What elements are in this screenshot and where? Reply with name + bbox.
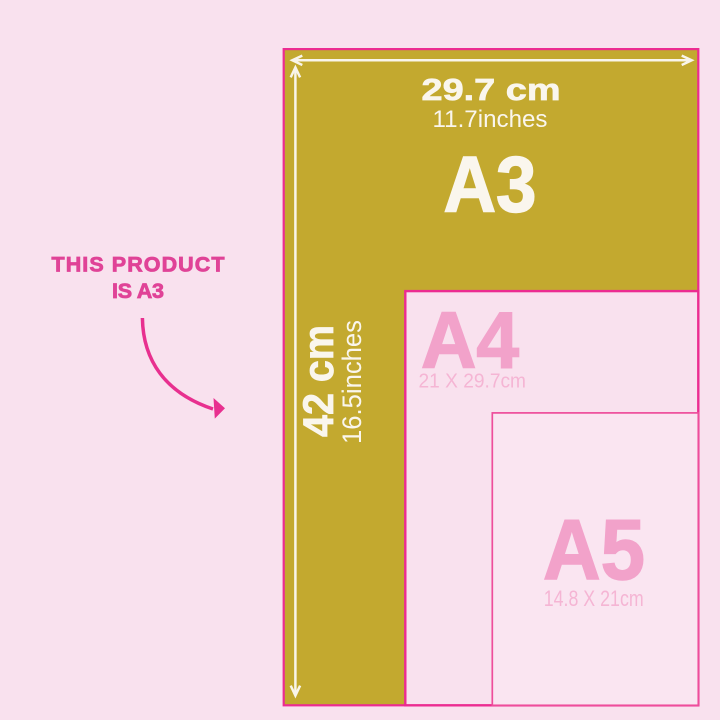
- svg-text:29.7 cm: 29.7 cm: [422, 73, 561, 107]
- svg-text:21 X 29.7cm: 21 X 29.7cm: [419, 371, 527, 393]
- svg-text:THIS PRODUCT: THIS PRODUCT: [52, 253, 225, 277]
- svg-text:A3: A3: [444, 140, 537, 229]
- svg-text:IS A3: IS A3: [112, 279, 164, 303]
- svg-text:A5: A5: [543, 503, 645, 598]
- svg-text:14.8 X 21cm: 14.8 X 21cm: [544, 586, 644, 611]
- svg-text:16.5inches: 16.5inches: [337, 320, 367, 444]
- svg-text:11.7inches: 11.7inches: [433, 106, 548, 133]
- svg-text:42 cm: 42 cm: [295, 325, 343, 437]
